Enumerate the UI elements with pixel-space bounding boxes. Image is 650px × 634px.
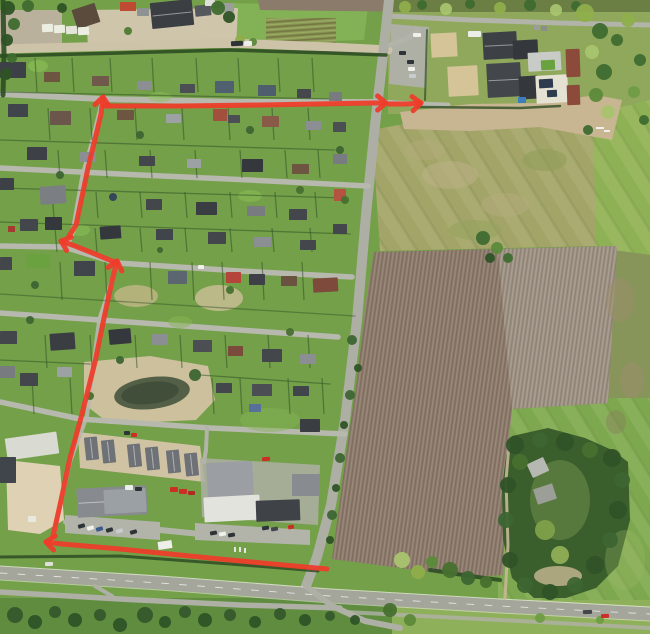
building: [137, 8, 149, 16]
tree: [589, 88, 603, 102]
building: [156, 229, 173, 240]
building: [226, 272, 241, 283]
tree: [411, 565, 425, 579]
tree: [556, 433, 574, 451]
tree: [404, 614, 416, 626]
building: [297, 89, 311, 98]
building: [208, 232, 226, 244]
tree: [137, 607, 153, 623]
vehicle: [407, 60, 414, 64]
building: [44, 72, 60, 82]
detail: [539, 79, 553, 89]
building: [252, 384, 272, 396]
tree: [286, 328, 294, 336]
vehicle: [188, 491, 195, 495]
ground-patch: [240, 408, 300, 432]
tree: [601, 105, 615, 119]
building: [333, 224, 347, 234]
building: [150, 0, 194, 29]
building: [187, 159, 201, 168]
tree: [198, 613, 212, 627]
building: [254, 237, 271, 247]
tree: [0, 68, 12, 80]
tree: [542, 584, 558, 600]
building: [49, 332, 75, 351]
vehicle: [45, 562, 53, 566]
detail: [239, 547, 241, 552]
building: [152, 334, 168, 345]
tree: [491, 242, 503, 254]
building: [566, 49, 581, 77]
tree: [211, 1, 225, 15]
tree: [551, 546, 569, 564]
tree: [596, 64, 612, 80]
vehicle: [170, 487, 178, 492]
detail: [596, 127, 604, 129]
aerial-photo: [0, 0, 650, 634]
building: [45, 217, 62, 230]
tree: [116, 356, 124, 364]
building: [262, 349, 282, 362]
tree: [611, 34, 623, 46]
building: [100, 225, 122, 239]
allotment-rows-texture: [266, 18, 336, 44]
building: [166, 114, 181, 123]
tree: [480, 576, 492, 588]
building: [117, 110, 134, 120]
tree: [621, 13, 635, 27]
school-parking: [389, 24, 429, 88]
detail: [547, 90, 557, 98]
building: [194, 4, 211, 17]
tree: [340, 421, 348, 429]
tree: [500, 477, 516, 493]
tree: [179, 606, 191, 618]
building: [103, 488, 146, 514]
tree: [576, 4, 594, 22]
vehicle: [231, 41, 243, 47]
vehicle: [262, 457, 270, 462]
tree: [517, 577, 533, 593]
tree: [26, 316, 34, 324]
tree: [383, 603, 397, 617]
tree: [550, 4, 562, 16]
detail: [8, 226, 15, 232]
vehicle: [583, 610, 592, 614]
tree: [603, 449, 621, 467]
building: [137, 81, 152, 90]
tree: [1, 34, 13, 46]
tree: [332, 484, 340, 492]
tree: [336, 146, 344, 154]
left-edge-trees: [3, 0, 4, 95]
tree: [7, 607, 23, 623]
building: [228, 115, 240, 123]
tree: [274, 608, 286, 620]
detail: [430, 32, 457, 57]
building: [258, 85, 276, 96]
tree: [512, 454, 528, 470]
building: [27, 147, 47, 160]
building: [293, 386, 309, 396]
tree: [535, 613, 545, 623]
detail: [447, 65, 479, 97]
tree: [498, 512, 514, 528]
building: [300, 240, 316, 250]
tree: [56, 171, 64, 179]
ground-patch: [449, 220, 501, 240]
tree: [614, 472, 630, 488]
tree: [582, 442, 598, 458]
tree: [347, 335, 357, 345]
tree: [476, 231, 490, 245]
ground-patch: [168, 316, 192, 328]
building: [329, 92, 342, 101]
tree: [442, 562, 458, 578]
vehicle: [601, 614, 609, 618]
building: [27, 253, 51, 268]
detail: [541, 26, 547, 31]
building: [74, 261, 95, 276]
detail: [66, 26, 77, 35]
vehicle: [135, 487, 142, 491]
ground-patch: [405, 140, 445, 160]
building: [567, 85, 581, 105]
tree: [602, 532, 618, 548]
tree: [628, 86, 640, 98]
tree: [223, 11, 235, 23]
ground-patch: [606, 410, 626, 434]
tree: [394, 552, 410, 568]
tree: [28, 615, 42, 629]
tree: [399, 1, 411, 13]
tree: [354, 364, 362, 372]
ground-patch: [481, 193, 529, 217]
tree: [136, 131, 144, 139]
vehicle: [179, 489, 187, 494]
building: [39, 185, 66, 205]
tree: [159, 616, 171, 628]
building: [289, 209, 307, 220]
building: [20, 373, 38, 386]
building: [228, 346, 243, 356]
building: [0, 178, 14, 190]
building: [281, 276, 297, 286]
tree: [345, 390, 355, 400]
tree: [335, 453, 345, 463]
ground-patch: [620, 362, 644, 398]
tree: [327, 510, 337, 520]
building: [20, 219, 38, 231]
building: [146, 199, 162, 210]
tree: [417, 0, 427, 10]
tree: [22, 0, 34, 12]
tree: [634, 54, 646, 66]
ground-patch: [606, 278, 634, 322]
tree: [461, 571, 475, 585]
building: [168, 271, 187, 284]
detail: [604, 130, 610, 132]
route-school-entry: [389, 103, 421, 104]
vehicle: [124, 431, 130, 435]
ground-patch: [523, 149, 567, 171]
building: [0, 366, 15, 378]
building: [193, 340, 212, 352]
building: [50, 111, 71, 125]
detail: [534, 25, 540, 30]
tree: [299, 614, 311, 626]
building: [8, 104, 28, 117]
tree: [249, 616, 261, 628]
building: [292, 474, 320, 496]
building: [180, 84, 195, 93]
tree: [583, 125, 593, 135]
building: [300, 354, 316, 364]
tree: [8, 18, 20, 30]
tree: [49, 606, 61, 618]
tree: [609, 501, 627, 519]
building: [541, 60, 556, 71]
building: [196, 202, 217, 215]
tree: [226, 286, 234, 294]
screenshot-root: [0, 0, 650, 634]
vehicle: [131, 433, 137, 437]
detail: [244, 548, 246, 553]
vehicle: [413, 33, 421, 37]
vehicle: [125, 485, 133, 490]
building: [306, 121, 321, 130]
detail: [54, 25, 65, 34]
building: [108, 328, 131, 345]
building: [262, 116, 279, 127]
tree: [189, 369, 201, 381]
vehicle: [244, 41, 252, 46]
tree: [440, 3, 452, 15]
tree: [494, 2, 506, 14]
tree: [113, 618, 127, 632]
tree: [246, 126, 254, 134]
tree: [157, 247, 163, 253]
tree: [109, 193, 117, 201]
tree: [124, 27, 132, 35]
tree: [592, 23, 608, 39]
tree: [503, 253, 513, 263]
tree: [68, 613, 82, 627]
ground-patch: [28, 60, 48, 72]
building: [57, 367, 72, 377]
building: [0, 331, 17, 344]
building: [216, 383, 232, 393]
vehicle: [198, 265, 204, 269]
tree: [31, 281, 39, 289]
tree: [585, 45, 599, 59]
building: [0, 457, 16, 483]
building: [0, 257, 12, 270]
tree: [224, 609, 236, 621]
building: [535, 74, 568, 104]
building: [120, 2, 136, 11]
tree: [350, 615, 360, 625]
tree: [532, 432, 548, 448]
tree: [7, 53, 17, 63]
building: [249, 404, 261, 412]
detail: [42, 24, 53, 33]
ground-patch: [148, 92, 172, 102]
tree: [1, 1, 15, 15]
detail: [28, 516, 36, 522]
detail: [234, 547, 236, 552]
building: [333, 154, 347, 164]
tree: [325, 611, 335, 621]
building: [300, 419, 320, 432]
building: [213, 109, 227, 121]
building: [242, 159, 263, 172]
vehicle: [468, 31, 481, 37]
tree: [94, 609, 106, 621]
building: [333, 122, 346, 132]
building: [256, 499, 301, 522]
detail: [518, 97, 526, 103]
tree: [506, 436, 524, 454]
building: [292, 164, 309, 174]
detail: [78, 27, 89, 36]
building: [247, 206, 265, 216]
vehicle: [409, 74, 416, 78]
tree: [502, 552, 518, 568]
vehicle: [408, 67, 415, 71]
building: [215, 81, 234, 93]
building: [249, 274, 265, 285]
tree: [326, 536, 334, 544]
tree: [341, 196, 349, 204]
building: [203, 495, 260, 523]
building: [206, 461, 254, 497]
building: [313, 277, 339, 292]
tree: [485, 253, 495, 263]
plowed-field-light-texture: [498, 246, 617, 409]
tree: [567, 577, 583, 593]
building: [92, 76, 109, 86]
ground-patch: [422, 161, 478, 189]
tree: [586, 556, 604, 574]
tree: [535, 520, 555, 540]
vehicle: [399, 51, 406, 55]
building: [139, 156, 155, 166]
tree: [639, 115, 649, 125]
tree: [57, 3, 67, 13]
tree: [426, 556, 438, 568]
tree: [296, 186, 304, 194]
